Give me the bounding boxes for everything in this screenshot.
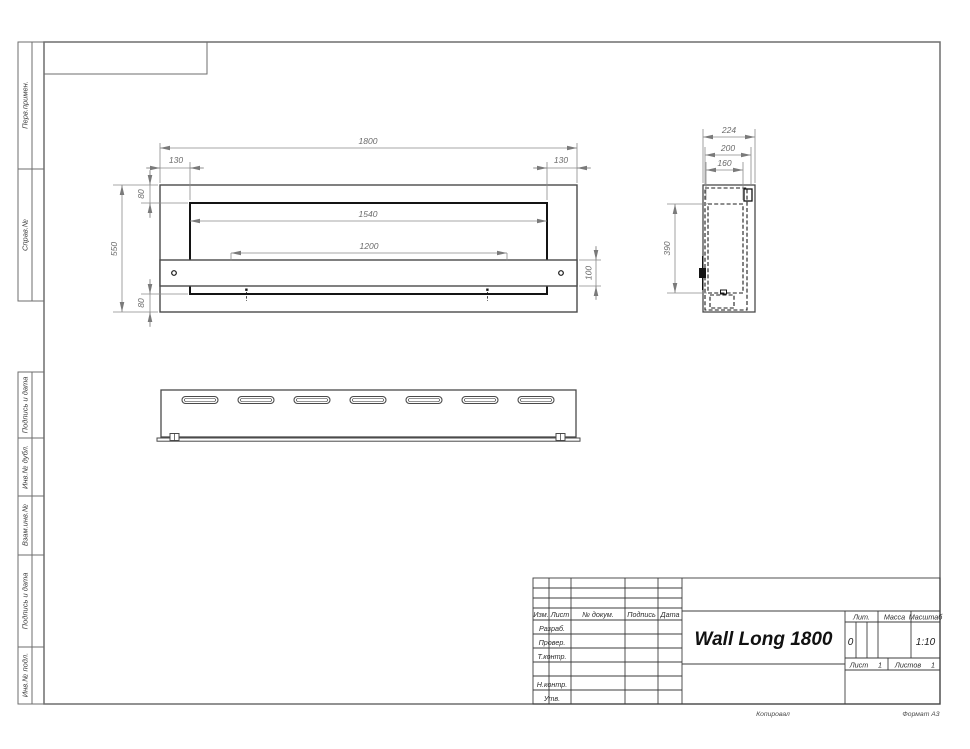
- dim-depth-overall: 224: [721, 125, 736, 135]
- front-view: 1800 130 130 1540 1200 550 80 80 100: [109, 136, 601, 327]
- dim-depth-inner: 160: [717, 158, 731, 168]
- tb-row-checked: Провер.: [539, 638, 566, 647]
- tb-scale-label: Масштаб: [909, 613, 944, 622]
- bottom-view: [157, 390, 580, 441]
- side-view: 224 200 160 390: [662, 125, 755, 312]
- tb-sheets-value: 1: [931, 661, 935, 670]
- foot-left: [170, 434, 179, 441]
- dim-burner-width: 1200: [360, 241, 379, 251]
- tb-col-list: Лист: [550, 610, 570, 619]
- dim-strip-height: 100: [584, 266, 594, 280]
- margin-label-inv-podl: Инв.№ подл.: [21, 653, 30, 697]
- margin-label-sprav-no: Справ.№: [21, 219, 30, 251]
- tb-mass-label: Масса: [884, 613, 905, 622]
- drawing-canvas: Перв.примен. Справ.№ Подпись и дата Инв.…: [0, 0, 970, 749]
- dim-overall-height: 550: [109, 242, 119, 256]
- tb-row-developed: Разраб.: [539, 624, 565, 633]
- foot-right: [556, 434, 565, 441]
- margin-label-vzam-inv: Взам.инв.№: [21, 504, 30, 546]
- tb-scale-value: 1:10: [916, 637, 936, 648]
- tb-sheet-value: 1: [878, 661, 882, 670]
- tb-col-doc: № докум.: [582, 610, 614, 619]
- tb-row-tcontrol: Т.контр.: [538, 652, 567, 661]
- margin-label-podpis-data-2: Подпись и дата: [21, 573, 30, 630]
- tb-lit-label: Лит.: [852, 613, 870, 622]
- tb-col-izm: Изм.: [533, 610, 548, 619]
- dim-inset-right: 130: [554, 155, 568, 165]
- tb-lit-value: 0: [848, 637, 854, 648]
- dim-overall-width: 1800: [359, 136, 378, 146]
- tb-col-date: Дата: [660, 610, 680, 619]
- title-block: Изм. Лист № докум. Подпись Дата Разраб. …: [533, 578, 943, 704]
- left-margin-column: Перв.примен. Справ.№ Подпись и дата Инв.…: [18, 42, 44, 704]
- margin-label-podpis-data-1: Подпись и дата: [21, 377, 30, 434]
- format-label: Формат А3: [902, 711, 939, 718]
- dim-depth-outer: 200: [720, 143, 735, 153]
- dim-opening-width: 1540: [359, 209, 378, 219]
- document-title: Wall Long 1800: [695, 629, 833, 650]
- margin-label-perv-primen: Перв.примен.: [21, 81, 30, 129]
- tb-row-ncontrol: Н.контр.: [537, 680, 567, 689]
- copied-label: Копировал: [756, 711, 790, 718]
- dim-top-offset: 80: [136, 189, 146, 199]
- tb-sheet-label: Лист: [849, 661, 869, 670]
- margin-label-inv-dubl: Инв.№ дубл.: [21, 445, 30, 489]
- dim-inset-left: 130: [169, 155, 183, 165]
- dim-inner-height: 390: [662, 241, 672, 255]
- tb-row-approved: Утв.: [543, 694, 560, 703]
- tb-sheets-label: Листов: [894, 661, 921, 670]
- dim-bottom-offset: 80: [136, 298, 146, 308]
- sheet-frame: [44, 42, 940, 704]
- drawing-sheet: Перв.примен. Справ.№ Подпись и дата Инв.…: [0, 0, 970, 749]
- tb-col-sign: Подпись: [627, 610, 656, 619]
